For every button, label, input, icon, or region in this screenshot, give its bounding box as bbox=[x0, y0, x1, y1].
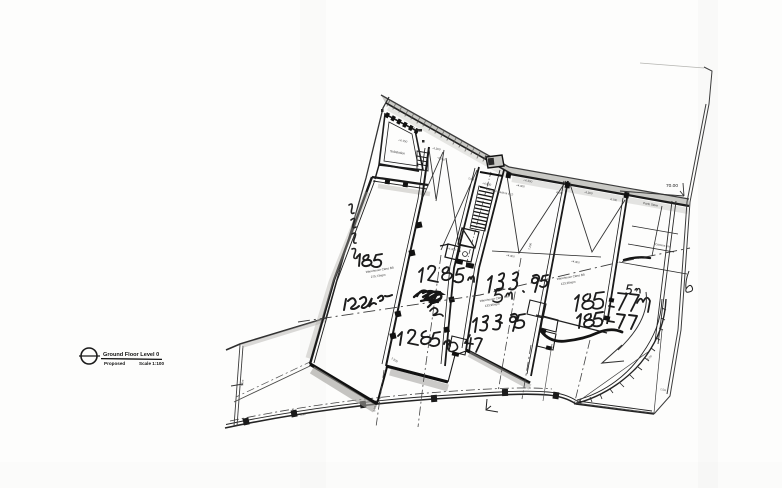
svg-text:Proposed: Proposed bbox=[104, 361, 125, 366]
svg-text:70.00: 70.00 bbox=[666, 183, 678, 189]
svg-text:Scale 1:100: Scale 1:100 bbox=[139, 361, 164, 366]
svg-text:Ground Floor Level 0: Ground Floor Level 0 bbox=[103, 352, 159, 358]
